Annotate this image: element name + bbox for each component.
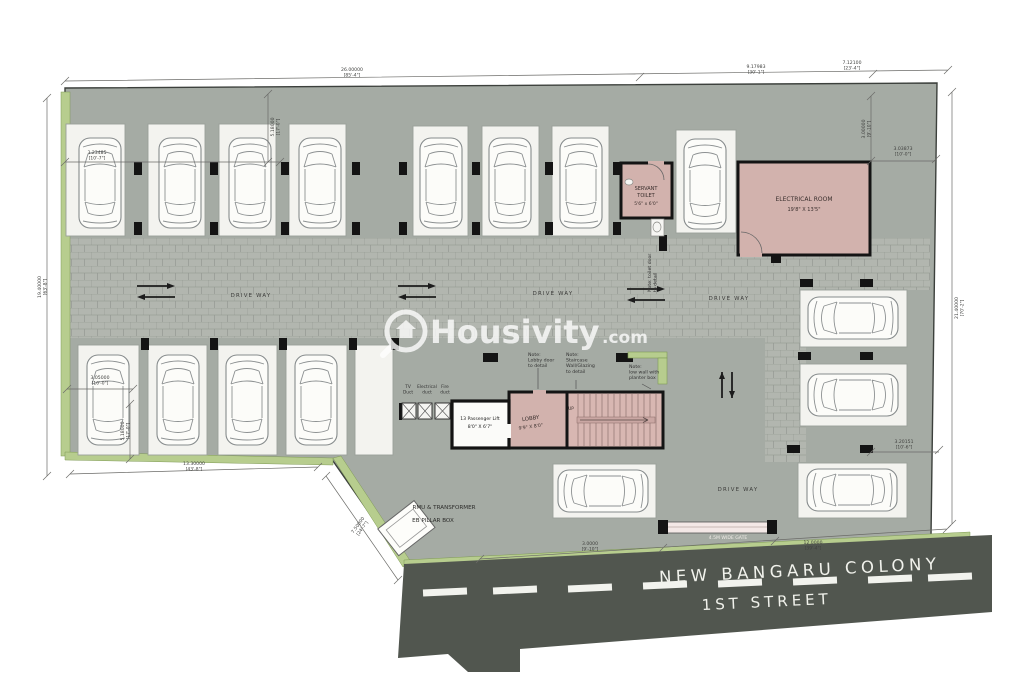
column [141, 338, 149, 350]
dim-value: 3.20151 [895, 439, 914, 445]
car [560, 138, 602, 228]
floor-plan-page: SERVANT TOILET 5'6" x 6'0" ELECTRICAL RO… [0, 0, 1024, 673]
dim-feet: [23'-4"] [844, 65, 861, 71]
column [352, 162, 360, 175]
duct-label: Electrical [417, 384, 437, 390]
car [226, 355, 268, 445]
car [159, 138, 201, 228]
parking-bay [355, 345, 393, 455]
car [684, 139, 726, 229]
note-line: Wall/Glazing [566, 363, 595, 369]
column [613, 222, 621, 235]
car [489, 138, 531, 228]
note-line: Note: [629, 364, 642, 370]
driveway-label: DRIVE WAY [231, 293, 272, 299]
driveway-label: DRIVE WAY [709, 296, 750, 302]
dim-feet: [10'-0"] [895, 151, 912, 157]
dimension-label: 3.05000[10'-0"] [91, 375, 110, 386]
dimension-label: 3.0000[9'-10"] [582, 541, 599, 552]
car [229, 138, 271, 228]
note-line: planter box [629, 375, 656, 381]
lift-size: 8'0" X 6'7" [468, 424, 493, 430]
note-line: to detail [566, 369, 585, 375]
dim-value: 3.0000 [582, 541, 598, 547]
car [157, 355, 199, 445]
dimension-label: 21.40000[70'-2"] [954, 297, 965, 319]
column [210, 162, 218, 175]
dimension-label: 13.30000[43'-8"] [183, 461, 205, 472]
gate-post-left [658, 520, 668, 534]
dimension-label: 19.40000[63'-8"] [37, 276, 48, 298]
column [483, 353, 498, 362]
dimension-label: 26.00000[85'-4"] [341, 67, 363, 78]
car [299, 138, 341, 228]
dim-value: 21.40000 [954, 297, 960, 319]
column [860, 352, 873, 360]
dim-value: 13.30000 [183, 461, 205, 467]
column [399, 222, 407, 235]
electrical-room: ELECTRICAL ROOM 19'8" X 13'5" [738, 162, 870, 257]
stair-up-label: UP [568, 406, 574, 411]
column [860, 279, 873, 287]
dimension-label: 5.18000[17'-0"] [120, 421, 131, 440]
watermark-tld: .com [602, 328, 648, 348]
servant-toilet-label-2: TOILET [636, 193, 655, 199]
duct-label: TV [404, 384, 411, 390]
note-line: to detail [528, 363, 547, 369]
column [210, 338, 218, 350]
driveway-label: DRIVE WAY [718, 487, 759, 493]
dimension-label: 5.18000[17'-0"] [270, 117, 281, 136]
column [349, 338, 357, 350]
car [295, 355, 337, 445]
gate-post-right [767, 520, 777, 534]
column [472, 222, 480, 235]
column [800, 279, 813, 287]
driveway-label: DRIVE WAY [533, 291, 574, 297]
servant-toilet-label-1: SERVANT [635, 186, 659, 192]
column [472, 162, 480, 175]
rmu-label: RMU & TRANSFORMER [412, 505, 475, 511]
note-line: Note: [566, 352, 579, 358]
dimension-label: 3.03873[10'-0"] [894, 146, 913, 157]
dim-value: 3.05000 [91, 375, 110, 381]
dim-feet: [17'-0"] [275, 118, 281, 135]
column [798, 352, 811, 360]
gate-size-label: 4.5M WIDE GATE [709, 535, 748, 541]
toilet-door-opening [648, 161, 664, 166]
note-line: low wall with [629, 370, 659, 376]
column [399, 162, 407, 175]
note-line: to detail [653, 273, 659, 292]
column [787, 445, 800, 453]
column [659, 235, 667, 251]
dim-value: 3.03873 [894, 146, 913, 152]
floor-plan-drawing: SERVANT TOILET 5'6" x 6'0" ELECTRICAL RO… [0, 0, 1024, 673]
note-line: Staircase [566, 358, 588, 364]
column [352, 222, 360, 235]
column [545, 162, 553, 175]
note-line: Note: toilet door [647, 254, 653, 292]
servant-toilet-size: 5'6" x 6'0" [634, 201, 658, 207]
column [134, 222, 142, 235]
note-line: Lobby door [528, 358, 554, 364]
duct-wall [399, 403, 402, 420]
electrical-door-opening [740, 251, 762, 257]
toilet-sink [625, 179, 633, 185]
dim-feet: [70'-2"] [959, 299, 965, 316]
dim-value: 26.00000 [341, 67, 363, 73]
duct-label: duct [440, 389, 450, 395]
dimension-label: 7.12100[23'-4"] [843, 60, 862, 71]
column [279, 338, 287, 350]
dim-feet: [10'-6"] [896, 444, 913, 450]
dim-feet: [63'-8"] [42, 278, 48, 295]
dim-value: 9.17983 [747, 64, 766, 70]
dim-feet: [39'-4"] [805, 545, 822, 551]
dim-value: 5.18000 [120, 421, 126, 440]
dim-value: 5.18000 [270, 117, 276, 136]
entry-gate [658, 520, 777, 534]
column [281, 222, 289, 235]
duct-label: Duct [403, 389, 413, 395]
dim-feet: [30'-1"] [748, 69, 765, 75]
gate-leaf [663, 522, 775, 533]
car [558, 470, 648, 512]
eb-pillar-label: EB PILLAR BOX [412, 518, 454, 524]
note-line: Note: [528, 352, 541, 358]
column [134, 162, 142, 175]
watermark-brand: Housivity [430, 313, 600, 351]
lift-door-opening [505, 424, 511, 438]
dimension-label: 12.0000[39'-4"] [804, 540, 823, 551]
dim-feet: [43'-8"] [186, 466, 203, 472]
dim-value: 7.12100 [843, 60, 862, 66]
lobby-door-opening [533, 390, 546, 395]
dim-value: 3.23485 [88, 150, 107, 156]
dim-feet: [9'-10"] [866, 120, 872, 137]
dim-feet: [9'-10"] [582, 546, 599, 552]
planter-box-side [658, 358, 667, 384]
car [808, 297, 898, 339]
dim-feet: [17'-0"] [125, 422, 131, 439]
dim-value: 3.00000 [861, 119, 867, 138]
dimension-label: 3.00000[9'-10"] [861, 119, 872, 138]
car [808, 374, 898, 416]
electrical-room-label: ELECTRICAL ROOM [775, 196, 832, 203]
lift-label: 13 Passenger Lift [460, 416, 500, 422]
car [420, 138, 462, 228]
electrical-room-size: 19'8" X 13'5" [787, 207, 820, 213]
duct-label: duct [422, 389, 432, 395]
dim-feet: [85'-4"] [344, 72, 361, 78]
dim-feet: [10'-7"] [89, 155, 106, 161]
duct-label: Fire [441, 384, 449, 390]
dimension-label: 3.20151[10'-6"] [895, 439, 914, 450]
column [281, 162, 289, 175]
column [545, 222, 553, 235]
dim-feet: [10'-0"] [92, 380, 109, 386]
car [807, 469, 897, 511]
dim-value: 12.0000 [804, 540, 823, 546]
planter-box-top [628, 352, 667, 358]
column [210, 222, 218, 235]
dimension-label: 9.17983[30'-1"] [747, 64, 766, 75]
dim-value: 19.40000 [37, 276, 43, 298]
dimension-label: 3.23485[10'-7"] [88, 150, 107, 161]
